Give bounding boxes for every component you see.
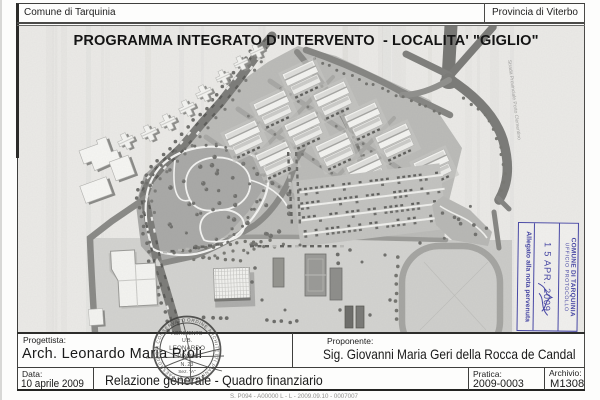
svg-text:AGRIMENTO: AGRIMENTO	[171, 331, 202, 337]
svg-text:N. 23: N. 23	[181, 362, 194, 368]
svg-text:Sez. "A": Sez. "A"	[178, 369, 196, 375]
svg-text:LEONARDO: LEONARDO	[169, 345, 205, 352]
